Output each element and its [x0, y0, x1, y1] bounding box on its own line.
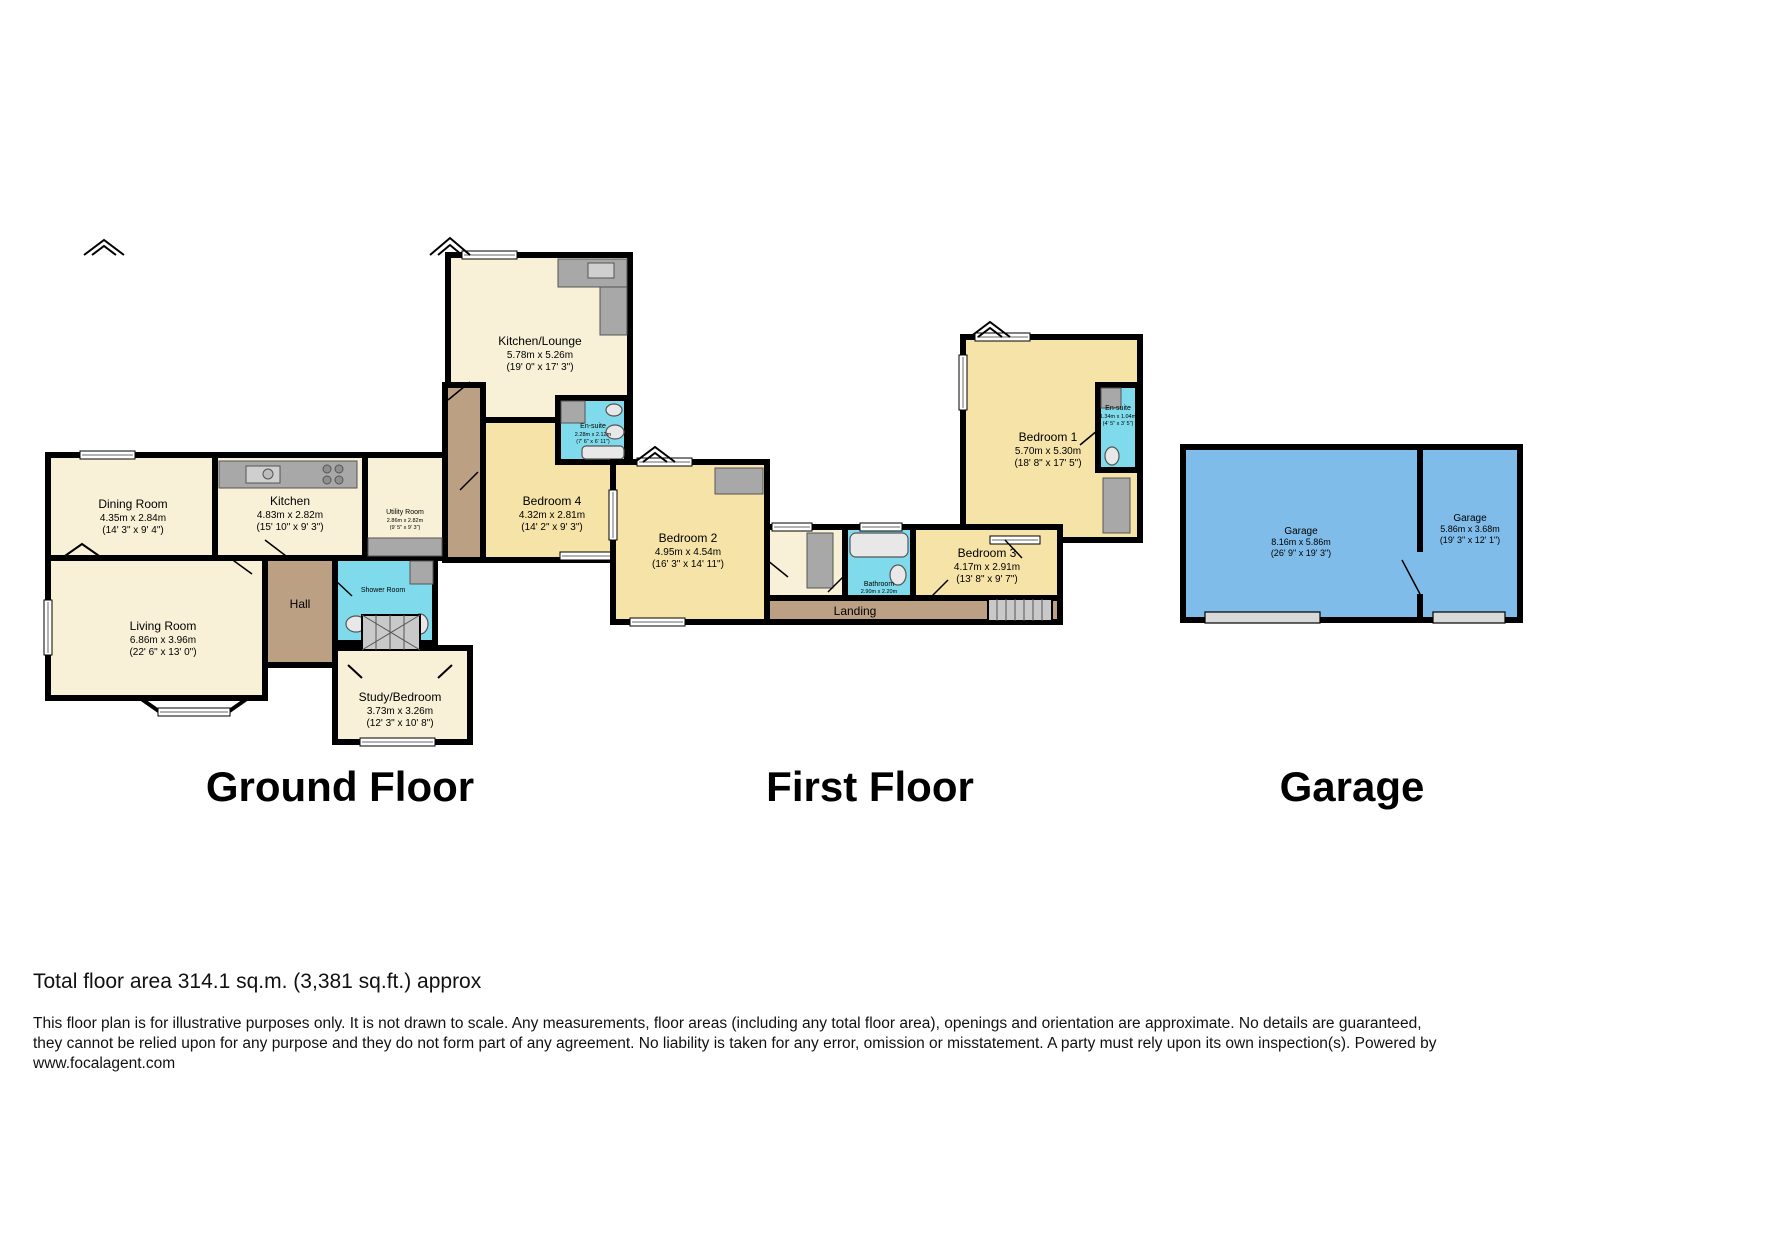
label-kitchen-lounge-metric: 5.78m x 5.26m	[507, 350, 573, 361]
label-bathroom-imperial: (9' 6" x 7' 3")	[864, 596, 895, 602]
bath-icon	[582, 446, 624, 459]
label-landing: Landing	[834, 604, 877, 618]
label-bedroom1-imperial: (18' 8" x 17' 5")	[1014, 458, 1081, 469]
label-bedroom4-metric: 4.32m x 2.81m	[519, 510, 585, 521]
ground-floor-plan: Kitchen/Lounge 5.78m x 5.26m (19' 0" x 1…	[44, 238, 630, 746]
garage-door	[1205, 612, 1320, 623]
shower-corner-icon	[410, 561, 433, 584]
label-kitchen-metric: 4.83m x 2.82m	[257, 510, 323, 521]
ground-floor-title: Ground Floor	[206, 763, 474, 811]
label-kitchen-lounge-imperial: (19' 0" x 17' 3")	[506, 362, 573, 373]
label-study-imperial: (12' 3" x 10' 8")	[366, 718, 433, 729]
label-ensuite-first-imperial: (4' 5" x 3' 5")	[1103, 421, 1134, 427]
label-kitchen-imperial: (15' 10" x 9' 3")	[256, 522, 323, 533]
label-kitchen: Kitchen	[270, 494, 310, 508]
garage-plan: Garage 8.16m x 5.86m (26' 9" x 19' 3") G…	[1183, 447, 1520, 623]
wardrobe	[807, 533, 833, 588]
stairs-first	[988, 599, 1052, 621]
disclaimer-line-2: they cannot be relied upon for any purpo…	[33, 1034, 1748, 1054]
label-kitchen-lounge: Kitchen/Lounge	[498, 334, 582, 348]
disclaimer-line-1: This floor plan is for illustrative purp…	[33, 1014, 1748, 1034]
label-bedroom1: Bedroom 1	[1019, 430, 1078, 444]
sink-bowl-icon	[263, 469, 273, 479]
wing-counter-2	[600, 287, 627, 335]
label-bedroom2-imperial: (16' 3" x 14' 11")	[652, 559, 724, 570]
label-bedroom1-metric: 5.70m x 5.30m	[1015, 446, 1081, 457]
floorplan-page: Kitchen/Lounge 5.78m x 5.26m (19' 0" x 1…	[0, 0, 1771, 1239]
label-utility-imperial: (9' 5" x 9' 3")	[390, 525, 421, 531]
label-living-imperial: (22' 6" x 13' 0")	[129, 647, 196, 658]
label-garage-left-metric: 8.16m x 5.86m	[1271, 537, 1331, 547]
label-bathroom: Bathroom	[864, 581, 895, 588]
door-opening-chevrons	[635, 322, 1010, 462]
wardrobe	[1103, 478, 1130, 533]
label-dining-imperial: (14' 3" x 9' 4")	[102, 525, 164, 536]
garage-door-gap	[1414, 552, 1426, 594]
label-study: Study/Bedroom	[359, 690, 442, 704]
room-hall	[265, 558, 335, 665]
label-bedroom4-imperial: (14' 2" x 9' 3")	[521, 522, 583, 533]
label-study-metric: 3.73m x 3.26m	[367, 706, 433, 717]
label-dining: Dining Room	[98, 497, 167, 511]
label-bathroom-metric: 2.90m x 2.20m	[861, 589, 898, 595]
label-bedroom3-imperial: (13' 8" x 9' 7")	[956, 574, 1018, 585]
utility-counter	[368, 538, 442, 556]
toilet-icon	[606, 404, 622, 416]
first-floor-plan: Bedroom 1 5.70m x 5.30m (18' 8" x 17' 5"…	[609, 322, 1140, 626]
label-garage-right: Garage	[1453, 513, 1487, 524]
label-bedroom3-metric: 4.17m x 2.91m	[954, 562, 1020, 573]
label-shower: Shower Room	[361, 587, 406, 594]
label-hall: Hall	[290, 597, 311, 611]
bath-icon	[850, 533, 908, 557]
label-garage-left: Garage	[1284, 526, 1318, 537]
label-ensuite-ground-imperial: (7' 6" x 6' 11")	[576, 439, 610, 445]
toilet-icon	[1105, 447, 1119, 465]
label-utility: Utility Room	[386, 509, 424, 516]
wardrobe	[715, 468, 763, 494]
total-floor-area-text: Total floor area 314.1 sq.m. (3,381 sq.f…	[33, 970, 481, 994]
garage-title: Garage	[1280, 763, 1425, 811]
label-garage-right-imperial: (19' 3" x 12' 1")	[1440, 535, 1500, 545]
label-garage-left-imperial: (26' 9" x 19' 3")	[1271, 548, 1331, 558]
label-bedroom4: Bedroom 4	[523, 494, 582, 508]
label-bedroom2-metric: 4.95m x 4.54m	[655, 547, 721, 558]
garage-door	[1433, 612, 1505, 623]
label-ensuite-ground-metric: 2.28m x 2.12m	[575, 432, 612, 438]
label-living: Living Room	[130, 619, 197, 633]
stairs-ground	[362, 615, 420, 650]
label-ensuite-first-metric: 1.34m x 1.04m	[1100, 414, 1137, 420]
label-bedroom2: Bedroom 2	[659, 531, 718, 545]
label-dining-metric: 4.35m x 2.84m	[100, 513, 166, 524]
wing-sink-icon	[588, 263, 614, 278]
first-floor-title: First Floor	[766, 763, 974, 811]
label-utility-metric: 2.86m x 2.82m	[387, 518, 424, 524]
disclaimer-line-3: www.focalagent.com	[33, 1054, 1748, 1074]
shower-icon	[561, 401, 585, 423]
label-living-metric: 6.86m x 3.96m	[130, 635, 196, 646]
kitchen-counter	[219, 461, 357, 488]
label-ensuite-first: En-suite	[1105, 405, 1131, 412]
label-ensuite-ground: En-suite	[580, 423, 606, 430]
label-garage-right-metric: 5.86m x 3.68m	[1440, 524, 1500, 534]
label-bedroom3: Bedroom 3	[958, 546, 1017, 560]
